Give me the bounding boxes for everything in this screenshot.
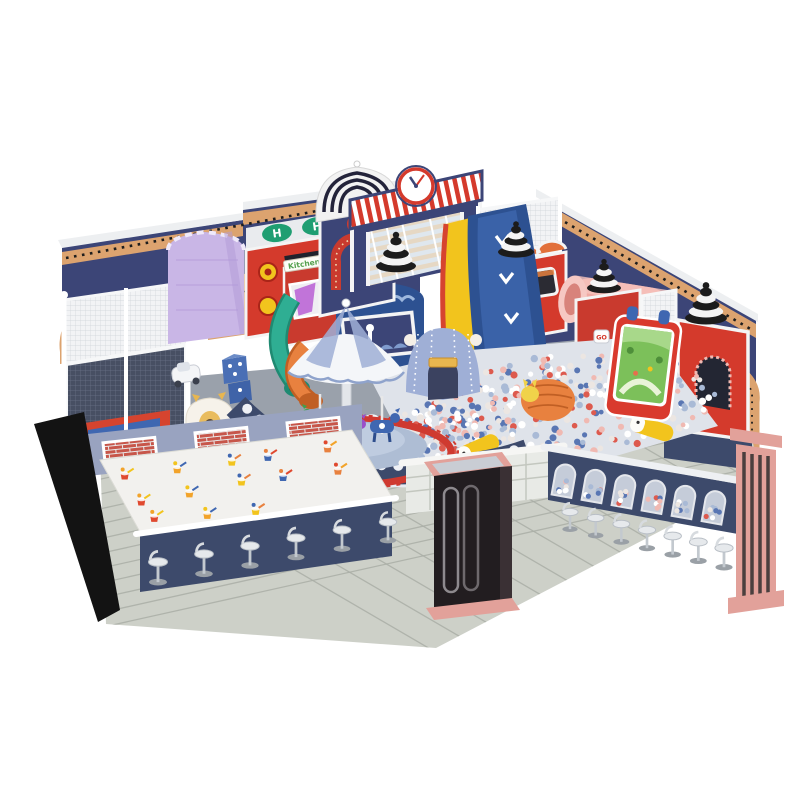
ball [595, 357, 602, 364]
ball [489, 392, 494, 397]
ball [532, 432, 539, 439]
ball [457, 436, 462, 441]
ball [492, 395, 498, 401]
ball [586, 403, 593, 410]
ball [544, 363, 550, 369]
ball [588, 381, 595, 388]
ball [456, 428, 462, 434]
bar-stool [715, 538, 733, 571]
ball [541, 357, 548, 364]
ball [712, 392, 717, 397]
ball [464, 433, 470, 439]
ball [567, 363, 574, 370]
ball [483, 369, 489, 375]
ball [682, 403, 687, 408]
bar-stool [664, 526, 682, 557]
ball [504, 405, 509, 410]
ball [474, 404, 481, 411]
ball [556, 366, 562, 372]
ball [679, 383, 684, 388]
ball [689, 401, 696, 408]
ball [504, 417, 511, 424]
ball [634, 440, 641, 447]
ball [491, 406, 497, 412]
ball [624, 431, 631, 438]
ball [591, 375, 596, 380]
ball [556, 429, 562, 435]
circus-tent [404, 328, 482, 400]
interactive-projection-screen [604, 305, 683, 422]
pink-column [728, 428, 784, 614]
ball [465, 422, 470, 427]
ball [469, 403, 476, 410]
ball [618, 424, 624, 430]
ball [447, 418, 452, 423]
ball [589, 389, 596, 396]
ball [599, 410, 604, 415]
ball [479, 416, 485, 422]
purple-tower [168, 232, 244, 344]
ball [450, 425, 455, 430]
ball [412, 410, 418, 416]
ball [597, 391, 604, 398]
ball [460, 409, 465, 414]
entrance-kiosk [424, 452, 520, 620]
ball [574, 367, 580, 373]
ball [582, 432, 587, 437]
ball [599, 426, 605, 432]
scene-svg: H H Kitchen [0, 0, 800, 800]
ball [572, 423, 578, 429]
ball [482, 385, 490, 393]
helipad-letter: H [272, 226, 283, 240]
ball [507, 363, 513, 369]
ball [516, 393, 521, 398]
ball [503, 397, 508, 402]
ball [560, 375, 567, 382]
ball [583, 391, 589, 397]
ball [425, 417, 432, 424]
ball [584, 418, 590, 424]
ball [569, 379, 574, 384]
ball [555, 372, 561, 378]
ball [434, 399, 440, 405]
ball [699, 398, 706, 405]
ball [564, 416, 571, 423]
ball [402, 412, 408, 418]
ball [488, 425, 493, 430]
ball [690, 415, 695, 420]
ball [467, 397, 473, 403]
wall-scallop [242, 404, 252, 414]
ball [697, 377, 702, 382]
ball [490, 401, 495, 406]
ball [528, 372, 533, 377]
bar-stool [689, 532, 707, 564]
ball [454, 415, 461, 422]
ball [681, 423, 686, 428]
ball [580, 440, 585, 445]
ball [417, 414, 424, 421]
ball [578, 384, 584, 390]
ball [510, 432, 515, 437]
ball [591, 410, 596, 415]
ball [439, 423, 445, 429]
ball [705, 394, 712, 401]
go-sign: GO [594, 330, 609, 343]
playground-render: H H Kitchen [0, 0, 800, 800]
ball [499, 376, 504, 381]
ball [597, 445, 603, 451]
ball [676, 377, 683, 384]
ball [502, 386, 509, 393]
ball [609, 436, 615, 442]
ball [699, 385, 705, 391]
ball [436, 405, 443, 412]
ball [624, 440, 630, 446]
ball [701, 407, 707, 413]
ball [467, 418, 472, 423]
ball [496, 418, 502, 424]
ball [500, 427, 505, 432]
ball [531, 355, 538, 362]
ball [580, 354, 586, 360]
ball [550, 434, 557, 441]
ball [533, 422, 538, 427]
ball [500, 367, 507, 374]
ball [597, 364, 602, 369]
ball [597, 383, 603, 389]
ball [579, 393, 584, 398]
ball [439, 445, 446, 452]
ball [430, 443, 437, 450]
ball [675, 389, 680, 394]
ball [547, 372, 553, 378]
ball [510, 371, 517, 378]
ball [518, 421, 525, 428]
go-sign-text: GO [596, 334, 607, 342]
ball [597, 375, 603, 381]
tent-sign [429, 358, 457, 367]
ball [501, 436, 506, 441]
ball [576, 402, 583, 409]
ball [471, 423, 478, 430]
